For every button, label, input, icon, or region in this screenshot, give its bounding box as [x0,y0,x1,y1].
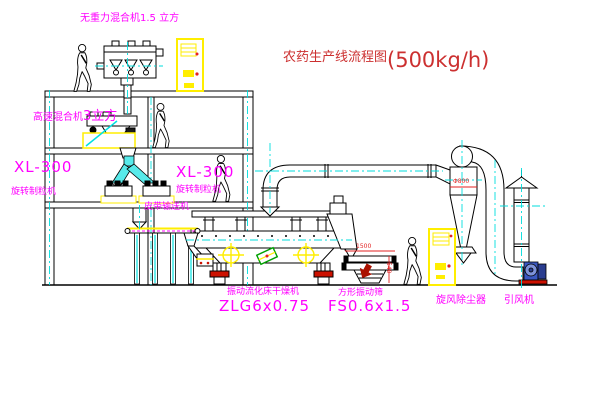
label-dryer-name: 振动流化床干燥机 [227,288,299,297]
label-fan: 引风机 [504,296,534,306]
fluid-bed-dryer [191,211,349,284]
label-sieve-model: FS0.6x1.5 [328,299,411,314]
diagram-title: 农药生产线流程图(500kg/h) [283,46,489,72]
label-granulator-right-model: XL-300 [176,165,234,180]
label-belt-conveyor: 皮带输送机 [144,203,189,212]
dim-sieve-length: 1500 [356,244,371,250]
dim-cyclone-diameter: Φ800 [453,179,469,185]
label-granulator-left-model: XL-300 [14,160,72,175]
control-cabinet-1 [177,39,203,91]
label-gravity-mixer: 无重力混合机1.5 立方 [80,14,179,24]
label-cyclone: 旋风除尘器 [436,296,486,306]
control-cabinet-2 [429,229,455,285]
label-high-speed-mixer: 高速混合机3立方 [33,110,117,123]
dim-sieve-height: 540 [385,262,391,273]
label-granulator-left-name: 旋转制粒机 [11,188,56,197]
title-text: 农药生产线流程图 [283,50,387,65]
label-granulator-right-name: 旋转制粒机 [176,186,221,195]
granulator-left [101,181,136,203]
title-capacity: (500kg/h) [387,48,489,72]
label-dryer-model: ZLG6x0.75 [219,299,310,314]
process-flow-diagram: 农药生产线流程图(500kg/h) 无重力混合机1.5 立方 高速混合机3立方 … [0,0,600,403]
exhaust-duct [261,164,436,216]
